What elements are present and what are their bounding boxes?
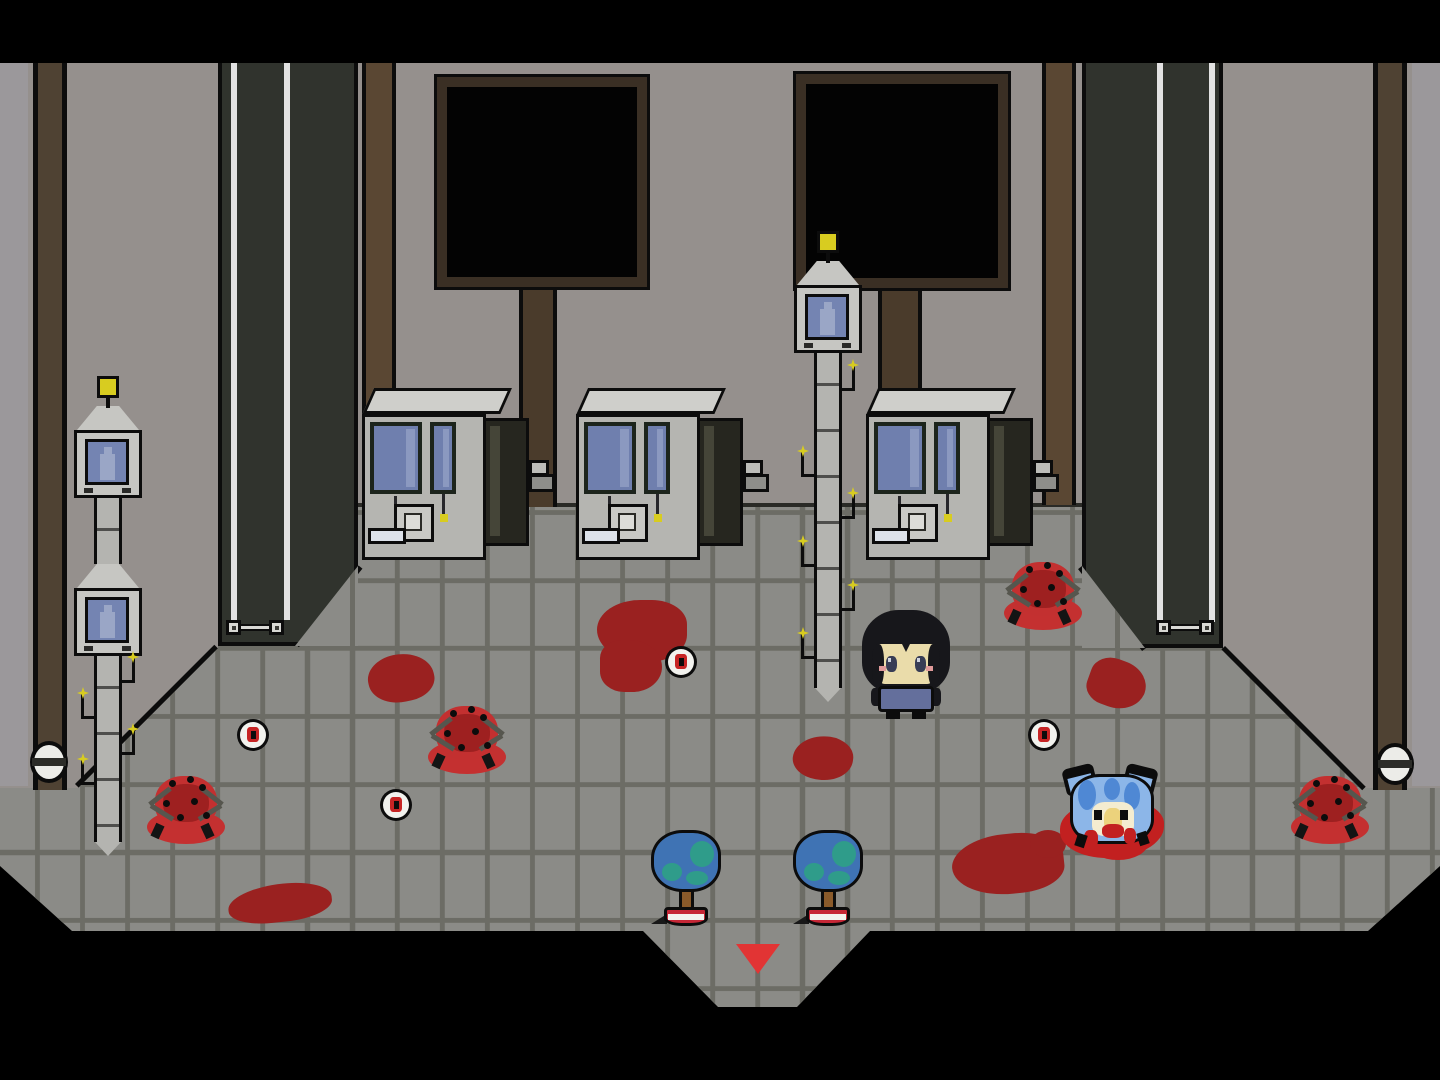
spider-dot: [444, 730, 451, 737]
spider-dot: [203, 812, 210, 819]
spider-dot: [1044, 562, 1051, 569]
cat-blood-streak: [1124, 828, 1136, 844]
blood-spider[interactable]: [1004, 556, 1082, 632]
bracket-dot: [1162, 626, 1166, 630]
spider-dot: [1347, 812, 1354, 819]
eyeball-pupil: [1042, 731, 1047, 739]
spider-dot: [191, 798, 198, 805]
window-highlight: [620, 429, 629, 487]
player-eye: [886, 656, 897, 672]
bracket-end: [1156, 620, 1171, 635]
potted-tree: [793, 830, 863, 926]
monitor-dot: [122, 646, 131, 651]
pole-joint: [817, 383, 839, 386]
pole-joint: [817, 567, 839, 570]
spider-dot: [1056, 570, 1063, 577]
cabinet-highlight: [490, 426, 500, 536]
spider-dot: [484, 742, 491, 749]
camera-screen: [805, 294, 849, 340]
player-body: [878, 686, 934, 712]
tower-pole: [814, 353, 842, 688]
ticket-machine-2[interactable]: [866, 388, 1061, 564]
hook-wire: [801, 542, 804, 567]
tree-pot: [664, 907, 708, 926]
machine-side-cabinet: [697, 418, 743, 546]
player-cheek: [879, 666, 886, 671]
spider-dot: [472, 728, 479, 735]
spider-dot: [468, 706, 475, 713]
machine-knob: [743, 474, 769, 492]
blood-spider[interactable]: [1291, 770, 1369, 846]
pillar-stripe: [231, 63, 237, 620]
eyeball-pupil: [251, 731, 256, 739]
bracket-end: [269, 620, 284, 635]
hook-wire: [852, 366, 855, 391]
machine-window: [430, 422, 456, 494]
bracket-end: [226, 620, 241, 635]
eyeball-pupil: [394, 801, 399, 809]
camera-figure-head: [104, 605, 112, 614]
eye-glint: [888, 658, 891, 662]
eyeball-pupil: [679, 658, 684, 666]
tower-pole: [94, 498, 122, 564]
bolt-slot: [32, 758, 66, 766]
machine-window: [874, 422, 926, 494]
pillar-stripe: [284, 63, 290, 620]
pot-stripe: [810, 914, 846, 920]
foliage-patch: [832, 841, 856, 867]
blood-stain: [600, 640, 662, 692]
spider-dot: [450, 710, 457, 717]
machine-wire: [656, 494, 659, 514]
foliage-patch: [686, 871, 708, 885]
spider-dot: [163, 800, 170, 807]
machine-slot: [368, 528, 406, 544]
blood-spider[interactable]: [147, 770, 225, 846]
pole-joint: [817, 521, 839, 524]
side-brown-column: [33, 63, 67, 790]
window-highlight: [657, 429, 663, 487]
camera-monitor: [794, 285, 862, 353]
hook-wire: [801, 452, 804, 477]
bolt-slot: [1378, 760, 1412, 768]
hook-wire: [852, 586, 855, 611]
window-highlight: [443, 429, 449, 487]
machine-indicator-light: [440, 514, 448, 522]
side-brown-column: [1373, 63, 1407, 790]
monitor-dot: [84, 646, 93, 651]
spider-dot: [1026, 566, 1033, 573]
spider-dot: [199, 784, 206, 791]
eye-glint: [917, 658, 920, 662]
cabinet-highlight: [994, 426, 1004, 536]
machine-knob: [529, 474, 555, 492]
pillar-stripe: [1157, 63, 1163, 622]
spider-dot: [480, 714, 487, 721]
spider-dot: [1020, 586, 1027, 593]
cat-blood-mouth: [1102, 824, 1124, 838]
spider-dot: [169, 780, 176, 787]
spider-dot: [187, 776, 194, 783]
spider-dot: [1313, 780, 1320, 787]
spider-dot: [177, 814, 184, 821]
tree-foliage: [651, 830, 721, 892]
letterbox-top: [0, 0, 1440, 63]
player-foot: [886, 710, 900, 719]
camera-figure: [100, 454, 115, 480]
machine-window: [370, 422, 422, 494]
machine-wire: [442, 494, 445, 514]
pole-joint: [817, 613, 839, 616]
eyeball-item[interactable]: [665, 646, 697, 678]
window-highlight: [406, 429, 415, 487]
cat-eye: [1094, 810, 1102, 820]
patch-grout-line: [350, 566, 355, 646]
cat-hair-strand: [1104, 778, 1120, 800]
cat-creature[interactable]: [1058, 766, 1168, 862]
panel-inner: [908, 513, 926, 531]
spider-dot: [1307, 800, 1314, 807]
eyeball-item[interactable]: [1028, 719, 1060, 751]
pot-stripe: [668, 914, 704, 920]
bracket-end: [1199, 620, 1214, 635]
bracket-dot: [275, 626, 279, 630]
camera-figure-head: [824, 302, 832, 311]
camera-figure: [820, 309, 835, 335]
eyeball-item[interactable]: [237, 719, 269, 751]
cabinet-highlight: [704, 426, 714, 536]
hook-wire: [132, 730, 135, 755]
player-foot: [912, 710, 926, 719]
machine-window: [584, 422, 636, 494]
warning-light: [97, 376, 119, 398]
camera-monitor: [74, 430, 142, 498]
player-eye: [915, 656, 926, 672]
player-character[interactable]: [862, 604, 950, 720]
wall-bolt: [1376, 743, 1414, 785]
pillar-bracket: [1156, 620, 1214, 635]
machine-wire: [946, 494, 949, 514]
side-wall-strip: [1412, 63, 1440, 786]
machine-top-face: [576, 388, 726, 414]
game-viewport: [0, 0, 1440, 1080]
machine-top-face: [866, 388, 1016, 414]
wall-bolt: [30, 741, 68, 783]
foliage-patch: [690, 841, 714, 867]
pole-joint: [817, 659, 839, 662]
pole-joint: [97, 824, 119, 827]
player-sidelock: [928, 644, 940, 686]
monitor-dot: [84, 488, 93, 493]
window-highlight: [947, 429, 953, 487]
hook-wire: [801, 634, 804, 659]
player-cheek: [926, 666, 933, 671]
ticket-machine-1[interactable]: [576, 388, 771, 564]
hook-wire: [132, 658, 135, 683]
pillar-bracket: [226, 620, 284, 635]
pole-joint: [97, 778, 119, 781]
machine-indicator-light: [944, 514, 952, 522]
eyeball-item[interactable]: [380, 789, 412, 821]
side-wall-strip: [0, 63, 28, 786]
spider-dot: [1335, 798, 1342, 805]
panel-inner: [404, 513, 422, 531]
tower-pole: [94, 656, 122, 842]
wall-screen-0: [437, 77, 647, 287]
machine-knob: [1033, 474, 1059, 492]
machine-top-face: [362, 388, 512, 414]
screen-post: [878, 286, 922, 396]
pole-joint: [97, 686, 119, 689]
panel-inner: [618, 513, 636, 531]
spider-dot: [1034, 600, 1041, 607]
camera-figure: [100, 612, 115, 638]
spider-dot: [1048, 584, 1055, 591]
cat-eye: [1120, 810, 1128, 820]
monitor-dot: [804, 343, 813, 348]
monitor-dot: [842, 343, 851, 348]
hook-wire: [81, 760, 84, 785]
pole-joint: [97, 528, 119, 531]
pole-joint: [817, 475, 839, 478]
machine-window: [644, 422, 670, 494]
potted-tree: [651, 830, 721, 926]
window-highlight: [910, 429, 919, 487]
spider-dot: [1331, 776, 1338, 783]
tree-pot: [806, 907, 850, 926]
camera-figure-head: [104, 447, 112, 456]
spider-dot: [1060, 598, 1067, 605]
spider-dot: [1321, 814, 1328, 821]
pillar-stripe: [1209, 63, 1215, 622]
bracket-dot: [232, 626, 236, 630]
ticket-machine-0[interactable]: [362, 388, 557, 564]
spider-dot: [1343, 784, 1350, 791]
machine-side-cabinet: [987, 418, 1033, 546]
tree-foliage: [793, 830, 863, 892]
hook-wire: [81, 694, 84, 719]
machine-side-cabinet: [483, 418, 529, 546]
foliage-patch: [804, 863, 824, 881]
camera-monitor: [74, 588, 142, 656]
hook-wire: [852, 494, 855, 519]
monitor-dot: [122, 488, 131, 493]
machine-slot: [582, 528, 620, 544]
pole-joint: [817, 429, 839, 432]
bracket-dot: [1205, 626, 1209, 630]
camera-screen: [85, 439, 129, 485]
wall-pillar-left: [218, 63, 358, 646]
blood-spider[interactable]: [428, 700, 506, 776]
wall-pillar-right: [1082, 63, 1223, 648]
player-sidelock: [872, 644, 884, 686]
machine-indicator-light: [654, 514, 662, 522]
machine-slot: [872, 528, 910, 544]
foliage-patch: [828, 871, 850, 885]
camera-screen: [85, 597, 129, 643]
machine-window: [934, 422, 960, 494]
foliage-patch: [662, 863, 682, 881]
warning-light: [817, 231, 839, 253]
pole-joint: [97, 732, 119, 735]
spider-dot: [458, 744, 465, 751]
